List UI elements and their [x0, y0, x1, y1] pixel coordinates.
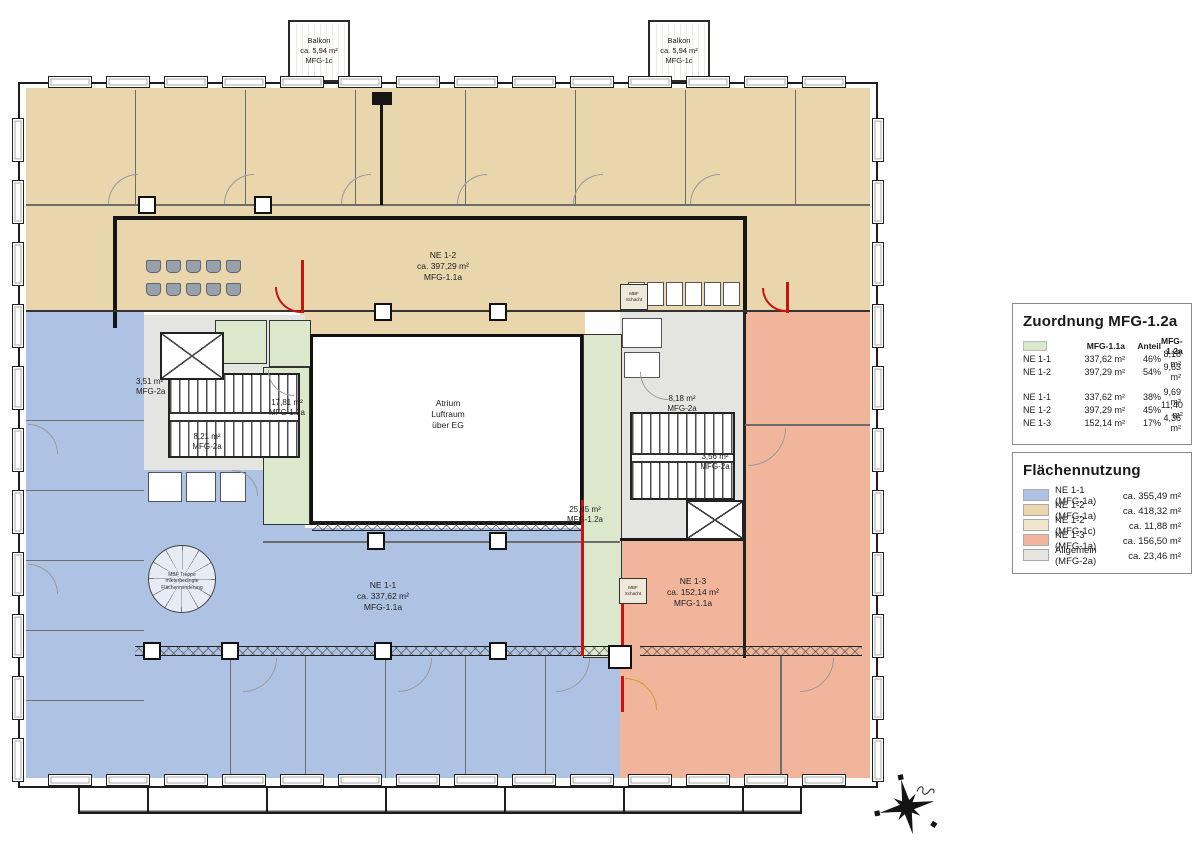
floor-plan-sheet: MBF Schacht MBF Schacht NE 1-2 ca. 397,2…: [0, 0, 1200, 844]
shaft-wall: [380, 105, 383, 205]
partition: [305, 656, 306, 778]
red-line: [301, 260, 304, 313]
terrace-divider: [385, 788, 387, 812]
facade-window: [12, 118, 24, 162]
partition: [26, 420, 144, 421]
compass-north-marker: [898, 774, 904, 780]
facade-window: [12, 242, 24, 286]
balcony-right: Balkon ca. 5,94 m² MFG-1c: [648, 20, 710, 82]
terrace-divider: [742, 788, 744, 812]
wc-cubicle: [148, 472, 182, 502]
zone-ne12-tan-mid: [300, 312, 585, 336]
partition: [26, 560, 144, 561]
area-label-818: 8,18 m² MFG-2a: [642, 394, 722, 415]
balcony-left: Balkon ca. 5,94 m² MFG-1c: [288, 20, 350, 82]
legend-value: ca. 418,32 m²: [1105, 506, 1181, 517]
column: [143, 642, 161, 660]
red-line: [621, 676, 624, 712]
north-arrow-compass: [870, 770, 944, 844]
facade-window: [454, 774, 498, 786]
unit-area: 337,62 m²: [1059, 354, 1125, 364]
chair: [146, 283, 161, 296]
facade-window: [512, 774, 556, 786]
facade-window: [744, 774, 788, 786]
area-label-356: 3,56 m² MFG-2a: [684, 452, 746, 473]
legend-value: ca. 11,88 m²: [1105, 521, 1181, 532]
kitchen-unit: [666, 282, 683, 306]
facade-window: [12, 738, 24, 782]
facade-window: [338, 76, 382, 88]
facade-window: [164, 774, 208, 786]
salmon-partition-h: [745, 424, 870, 426]
room-label-ne12: NE 1-2 ca. 397,29 m² MFG-1.1a: [383, 250, 503, 283]
legend-zuordnung-header: MFG-1.1a Anteil MFG-1.2a: [1023, 336, 1181, 349]
chair: [166, 283, 181, 296]
partition: [385, 656, 386, 778]
color-swatch-ne12a: [1023, 504, 1049, 516]
facade-window: [802, 774, 846, 786]
legend-value: ca. 355,49 m²: [1105, 491, 1181, 502]
atrium-glazing: [312, 521, 581, 531]
floor-plan: MBF Schacht MBF Schacht NE 1-2 ca. 397,2…: [0, 0, 900, 844]
terrace-divider: [623, 788, 625, 812]
facade-window: [744, 76, 788, 88]
column: [608, 645, 632, 669]
facade-window: [12, 366, 24, 410]
kitchen-unit: [647, 282, 664, 306]
facade-window: [280, 774, 324, 786]
facade-window: [628, 76, 672, 88]
facade-window: [872, 552, 884, 596]
unit-share: 46%: [1125, 354, 1161, 364]
zone-green-room-2: [269, 320, 311, 367]
chair: [186, 283, 201, 296]
facade-window: [338, 774, 382, 786]
shaft-block: [372, 92, 392, 105]
facade-window: [872, 614, 884, 658]
room-label-ne11: NE 1-1 ca. 337,62 m² MFG-1.1a: [323, 580, 443, 613]
kitchen-unit: [685, 282, 702, 306]
wc-cubicle: [622, 318, 662, 348]
table-row: NE 1-1 337,62 m² 38% 9,69 m²: [1023, 387, 1181, 400]
room-label-ne13: NE 1-3 ca. 152,14 m² MFG-1.1a: [633, 576, 753, 609]
facade-window: [570, 76, 614, 88]
column: [489, 642, 507, 660]
unit-area: 397,29 m²: [1059, 405, 1125, 415]
unit-share: 45%: [1125, 405, 1161, 415]
mfg12a-swatch: [1023, 341, 1047, 351]
area-label-351: 3,51 m² MFG-2a: [136, 377, 192, 398]
partition: [795, 90, 796, 204]
facade-window: [12, 428, 24, 472]
facade-window: [12, 490, 24, 534]
wc-cubicle: [186, 472, 216, 502]
mbf-schacht-box: MBF Schacht: [620, 284, 648, 310]
zone-ne11-blue-left: [26, 312, 144, 778]
unit-name: NE 1-1: [1023, 354, 1059, 364]
col-header: MFG-1.1a: [1059, 341, 1125, 351]
balcony-label: Balkon ca. 5,94 m² MFG-1c: [660, 36, 698, 66]
facade-window: [48, 774, 92, 786]
column: [489, 532, 507, 550]
zone-green-strip-right: [583, 334, 622, 658]
chair: [146, 260, 161, 273]
facade-window: [454, 76, 498, 88]
facade-window: [48, 76, 92, 88]
tenant-wall-h: [113, 216, 747, 220]
facade-window: [396, 774, 440, 786]
chair: [226, 260, 241, 273]
facade-window: [512, 76, 556, 88]
facade-window: [12, 304, 24, 348]
facade-window: [872, 366, 884, 410]
column: [367, 532, 385, 550]
terrace-divider: [147, 788, 149, 812]
unit-share: 17%: [1125, 418, 1161, 428]
facade-window: [164, 76, 208, 88]
facade-window: [686, 76, 730, 88]
facade-window: [872, 676, 884, 720]
partition: [26, 490, 144, 491]
facade-window: [628, 774, 672, 786]
color-swatch-ne13: [1023, 534, 1049, 546]
facade-window: [872, 242, 884, 286]
compass-script-flourish: [916, 784, 934, 796]
chair: [166, 260, 181, 273]
facade-window: [12, 614, 24, 658]
facade-window: [872, 118, 884, 162]
compass-se-marker: [930, 821, 937, 828]
facade-window: [12, 552, 24, 596]
column: [138, 196, 156, 214]
room-label-atrium: Atrium Luftraum über EG: [388, 398, 508, 431]
kitchen-unit: [704, 282, 721, 306]
column: [374, 303, 392, 321]
unit-name: NE 1-3: [1023, 418, 1059, 428]
facade-window: [686, 774, 730, 786]
partition: [575, 90, 576, 204]
tenant-wall-v-right: [743, 216, 747, 314]
area-label-1781: 17,81 m² MFG-1.2a: [256, 398, 318, 419]
chair: [206, 283, 221, 296]
legend-zuordnung-title: Zuordnung MFG-1.2a: [1023, 313, 1181, 330]
legend-item: NE 1-1 (MFG-1a) ca. 355,49 m²: [1023, 485, 1181, 500]
chair: [206, 260, 221, 273]
glazed-partition-salmon: [640, 646, 862, 656]
column: [489, 303, 507, 321]
chair: [226, 283, 241, 296]
col-header: Anteil: [1125, 341, 1161, 351]
facade-window: [872, 490, 884, 534]
balcony-label: Balkon ca. 5,94 m² MFG-1c: [300, 36, 338, 66]
unit-value: 4,36 m²: [1161, 413, 1181, 433]
elevator-left: [160, 332, 224, 380]
legend-zuordnung: Zuordnung MFG-1.2a MFG-1.1a Anteil MFG-1…: [1012, 303, 1192, 445]
partition: [685, 90, 686, 204]
facade-window: [106, 774, 150, 786]
facade-window: [12, 676, 24, 720]
color-swatch-ne11: [1023, 489, 1049, 501]
terrace-divider: [504, 788, 506, 812]
area-label-2545: 25,45 m² MFG-1.2a: [545, 505, 625, 526]
facade-window: [872, 180, 884, 224]
partition: [26, 630, 144, 631]
facade-window: [222, 76, 266, 88]
facade-window: [222, 774, 266, 786]
legend-flaeche-title: Flächennutzung: [1023, 462, 1181, 479]
terrace-divider: [266, 788, 268, 812]
partition: [465, 656, 466, 778]
facade-window: [872, 428, 884, 472]
unit-area: 397,29 m²: [1059, 367, 1125, 377]
unit-share: 54%: [1125, 367, 1161, 377]
unit-name: NE 1-1: [1023, 392, 1059, 402]
unit-value: 9,63 m²: [1161, 362, 1181, 382]
facade-window: [12, 180, 24, 224]
chair: [186, 260, 201, 273]
mbf-schacht-label: MBF Schacht: [626, 291, 642, 303]
unit-name: NE 1-2: [1023, 367, 1059, 377]
legend-value: ca. 156,50 m²: [1105, 536, 1181, 547]
partition: [230, 656, 231, 778]
legend-flaechennutzung: Flächennutzung NE 1-1 (MFG-1a) ca. 355,4…: [1012, 452, 1192, 574]
salmon-partition-v: [780, 656, 782, 778]
elevator-right: [686, 500, 744, 540]
legend-value: ca. 23,46 m²: [1105, 551, 1181, 562]
facade-window: [106, 76, 150, 88]
column: [221, 642, 239, 660]
partition: [26, 700, 144, 701]
legend-label: Allgemein (MFG-2a): [1055, 545, 1105, 567]
unit-share: 38%: [1125, 392, 1161, 402]
terrace-strip: [78, 786, 802, 814]
unit-area: 337,62 m²: [1059, 392, 1125, 402]
compass-west-marker: [874, 810, 880, 816]
column: [254, 196, 272, 214]
facade-window: [570, 774, 614, 786]
mbf-treppe-note: MBF Treppe mieterbedingte Flächenminderu…: [150, 572, 214, 591]
facade-window: [872, 304, 884, 348]
facade-window: [802, 76, 846, 88]
mid-wall-h: [263, 541, 620, 543]
partition: [545, 656, 546, 778]
unit-name: NE 1-2: [1023, 405, 1059, 415]
unit-area: 152,14 m²: [1059, 418, 1125, 428]
facade-window: [280, 76, 324, 88]
facade-window: [396, 76, 440, 88]
area-label-821: 8,21 m² MFG-2a: [172, 432, 242, 453]
red-line: [786, 282, 789, 313]
color-swatch-allgemein: [1023, 549, 1049, 561]
color-swatch-ne12c: [1023, 519, 1049, 531]
kitchen-unit: [723, 282, 740, 306]
column: [374, 642, 392, 660]
